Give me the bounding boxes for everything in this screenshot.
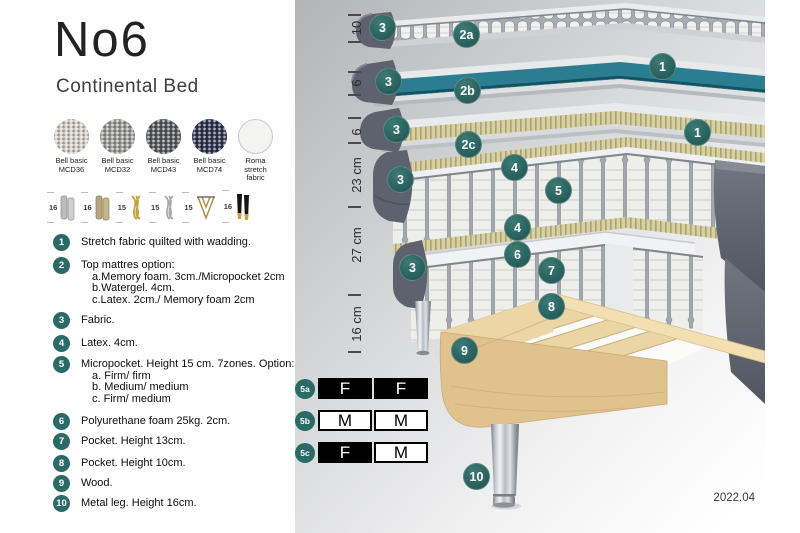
- fabric-swatch[interactable]: Bell basicMCD36: [51, 119, 92, 183]
- info-panel: No6 Continental Bed Bell basicMCD36 Bell…: [0, 0, 295, 533]
- firmness-row-5a: 5a F F: [295, 378, 428, 399]
- version-label: 2022.04: [693, 492, 755, 504]
- legend-subline: c.Latex. 2cm./ Memory foam 2cm: [92, 295, 285, 307]
- cylinder-legs-wood-icon: [94, 194, 111, 221]
- callout-2c: 2c: [455, 131, 482, 158]
- legend-text: Fabric.: [81, 314, 115, 326]
- firmness-cell: M: [318, 410, 372, 431]
- firmness-cell: F: [318, 378, 372, 399]
- hairpin-legs-gold-icon: [195, 194, 217, 221]
- fabric-swatch-circle: [54, 119, 89, 154]
- legend-item-10: 10 Metal leg. Height 16cm.: [53, 495, 298, 512]
- leg-height: 16: [224, 202, 232, 211]
- leg-options: 16 16 15 15: [49, 186, 250, 222]
- legend-text: Latex. 4cm.: [81, 337, 138, 349]
- callout-10: 10: [463, 463, 490, 490]
- fabric-swatch[interactable]: Bell basicMCD43: [143, 119, 184, 183]
- legend-text: Micropocket. Height 15 cm. 7zones. Optio…: [81, 358, 294, 370]
- callout-1: 1: [684, 119, 711, 146]
- legend-number-badge: 4: [53, 335, 70, 352]
- legend-text: Pocket. Height 13cm.: [81, 435, 186, 447]
- legend-subline: c. Firm/ medium: [92, 394, 294, 406]
- callout-2a: 2a: [453, 21, 480, 48]
- firmness-badge: 5c: [295, 443, 315, 463]
- dimension-label: 23 cm: [349, 143, 365, 207]
- callout-5: 5: [545, 177, 572, 204]
- leg-height: 16: [49, 203, 57, 212]
- page-title: No6: [54, 12, 150, 68]
- twisted-legs-silver-icon: [161, 194, 177, 221]
- leg-height: 15: [118, 203, 126, 212]
- callout-1: 1: [649, 53, 676, 80]
- firmness-cell: F: [318, 442, 372, 463]
- callout-3: 3: [375, 68, 402, 95]
- callout-3: 3: [369, 14, 396, 41]
- callout-6: 6: [504, 241, 531, 268]
- legend-number-badge: 7: [53, 433, 70, 450]
- fabric-swatch-circle: [192, 119, 227, 154]
- leg-height: 16: [83, 203, 91, 212]
- fabric-swatch-label: Romastretch fabric: [235, 157, 276, 183]
- leg-option[interactable]: 15: [118, 193, 144, 222]
- callout-4: 4: [501, 154, 528, 181]
- fabric-swatch-label: Bell basicMCD36: [55, 157, 87, 174]
- fabric-swatch[interactable]: Bell basicMCD74: [189, 119, 230, 183]
- fabric-swatch[interactable]: Bell basicMCD32: [97, 119, 138, 183]
- legend-number-badge: 6: [53, 413, 70, 430]
- callout-3: 3: [383, 116, 410, 143]
- dimension-label: 16 cm: [349, 292, 365, 356]
- twisted-legs-gold-icon: [128, 194, 144, 221]
- legend-item-8: 8 Pocket. Height 10cm.: [53, 455, 298, 472]
- firmness-cell: M: [374, 442, 428, 463]
- firmness-badge: 5a: [295, 379, 315, 399]
- firmness-cell: M: [374, 410, 428, 431]
- fabric-swatch-label: Bell basicMCD32: [101, 157, 133, 174]
- fabric-swatch-circle: [238, 119, 273, 154]
- firmness-badge: 5b: [295, 411, 315, 431]
- callout-9: 9: [451, 337, 478, 364]
- leg-height: 15: [151, 203, 159, 212]
- fabric-swatches: Bell basicMCD36 Bell basicMCD32 Bell bas…: [51, 119, 276, 183]
- legend-number-badge: 10: [53, 495, 70, 512]
- callout-3: 3: [399, 254, 426, 281]
- legend-item-7: 7 Pocket. Height 13cm.: [53, 433, 298, 450]
- legend-text: Metal leg. Height 16cm.: [81, 497, 197, 509]
- leg-option[interactable]: 15: [151, 193, 177, 222]
- legend-item-2: 2 Top mattres option: a.Memory foam. 3cm…: [53, 257, 298, 306]
- tapered-legs-black-gold-icon: [234, 192, 250, 221]
- fabric-swatch-label: Bell basicMCD43: [147, 157, 179, 174]
- legend-text: Pocket. Height 10cm.: [81, 457, 186, 469]
- legend-number-badge: 9: [53, 475, 70, 492]
- leg-option[interactable]: 16: [49, 193, 76, 222]
- callout-8: 8: [538, 293, 565, 320]
- legend-item-3: 3 Fabric.: [53, 312, 298, 329]
- legend-item-4: 4 Latex. 4cm.: [53, 335, 298, 352]
- fabric-swatch-circle: [146, 119, 181, 154]
- leg-option[interactable]: 15: [184, 193, 216, 222]
- legend-number-badge: 1: [53, 234, 70, 251]
- legend-text: Top mattres option:: [81, 259, 175, 271]
- callout-3: 3: [387, 166, 414, 193]
- leg-option[interactable]: 16: [224, 191, 250, 222]
- fabric-swatch-label: Bell basicMCD74: [193, 157, 225, 174]
- leg-height: 15: [184, 203, 192, 212]
- legend-text: Stretch fabric quilted with wadding.: [81, 236, 251, 248]
- legend-item-9: 9 Wood.: [53, 475, 298, 492]
- bed-diagram: 10 6 6 23 cm 27 cm 16 cm 3 2a 1 3 2b 3 1…: [295, 0, 800, 533]
- callout-4: 4: [504, 214, 531, 241]
- legend-item-1: 1 Stretch fabric quilted with wadding.: [53, 234, 298, 251]
- fabric-swatch[interactable]: Romastretch fabric: [235, 119, 276, 183]
- legend-item-6: 6 Polyurethane foam 25kg. 2cm.: [53, 413, 298, 430]
- product-sheet: No6 Continental Bed Bell basicMCD36 Bell…: [0, 0, 800, 533]
- legend-item-5: 5 Micropocket. Height 15 cm. 7zones. Opt…: [53, 356, 298, 405]
- cylinder-legs-silver-icon: [59, 194, 76, 221]
- firmness-row-5b: 5b M M: [295, 410, 428, 431]
- legend-text: Wood.: [81, 477, 113, 489]
- callout-7: 7: [538, 257, 565, 284]
- leg-option[interactable]: 16: [83, 193, 110, 222]
- legend-number-badge: 5: [53, 356, 70, 373]
- firmness-cell: F: [374, 378, 428, 399]
- callout-2b: 2b: [454, 77, 481, 104]
- legend-number-badge: 3: [53, 312, 70, 329]
- fabric-swatch-circle: [100, 119, 135, 154]
- page-subtitle: Continental Bed: [56, 76, 199, 98]
- firmness-row-5c: 5c F M: [295, 442, 428, 463]
- dimension-label: 27 cm: [349, 213, 365, 277]
- legend-text: Polyurethane foam 25kg. 2cm.: [81, 415, 230, 427]
- legend-number-badge: 8: [53, 455, 70, 472]
- legend-number-badge: 2: [53, 257, 70, 274]
